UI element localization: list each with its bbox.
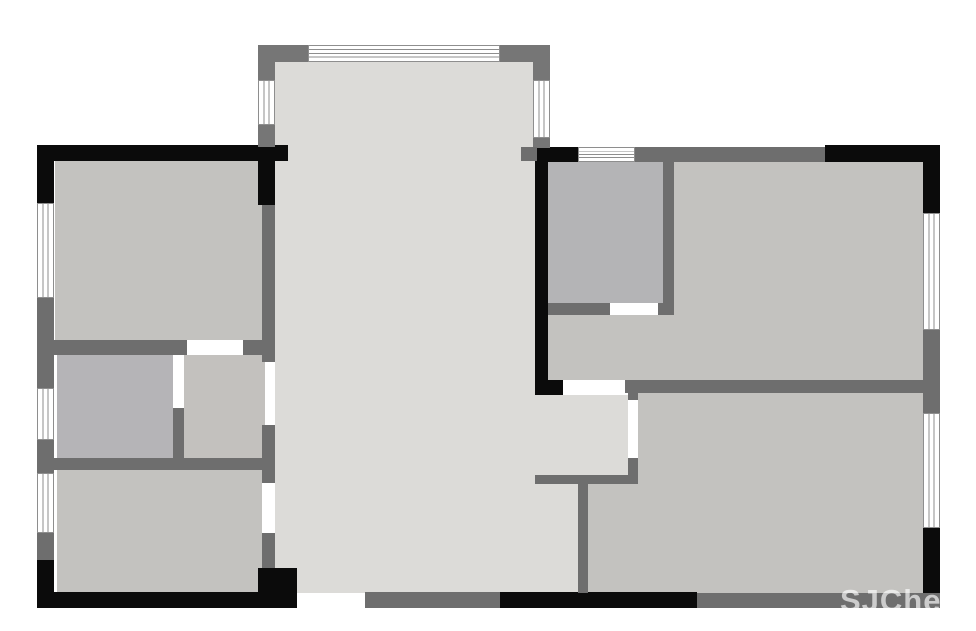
bedroom-bottom-right-upper (638, 393, 923, 475)
window-bay-left (258, 80, 275, 125)
bathroom-left (57, 355, 173, 458)
living-area-strip (535, 484, 578, 593)
hallway-nook (535, 395, 628, 475)
wall-bedroom2-doorpost-top (628, 393, 638, 400)
wall-leftwing-right-a (262, 205, 275, 362)
wall-living-bedroom2-vertical (578, 484, 588, 593)
door-closet (610, 303, 658, 315)
living-area-bay (275, 62, 533, 147)
wall-right-pier-mid (923, 330, 940, 413)
bedroom-bottom-left (57, 470, 262, 593)
wall-below-bedroom-tl-left (37, 340, 187, 355)
living-area-main (275, 147, 535, 593)
wall-bottom-center-black (500, 592, 697, 608)
door-master (563, 380, 625, 395)
wall-below-small-rooms (37, 458, 275, 470)
window-left-bottom (37, 473, 54, 533)
wall-bay-topright-v (533, 45, 550, 80)
wall-master-bottom (625, 380, 923, 393)
wall-rightwing-top-gray (635, 147, 825, 162)
wall-left-upper-corner (37, 145, 54, 205)
wall-bay-right-junction (521, 147, 537, 161)
wall-bay-topleft-v (258, 45, 275, 80)
closet-room (548, 161, 663, 303)
wall-bottom-gray-left (365, 592, 500, 608)
wall-closet-bottom-corner (658, 303, 674, 315)
wall-hallway-bottom (535, 475, 638, 484)
wall-bedroom2-left-lower (628, 458, 638, 475)
wall-master-doorpost (535, 380, 563, 395)
window-bay-top (308, 45, 500, 62)
wall-leftwing-right-b (262, 425, 275, 483)
window-right-lower (923, 413, 940, 528)
wall-top-left-exterior (37, 145, 288, 161)
wall-bath-divider (173, 408, 184, 458)
bedroom-bottom-right-lower (588, 475, 923, 593)
wall-rightwing-top-black-left (535, 147, 578, 162)
wall-bay-left-lower (258, 125, 275, 147)
wall-left-pier-3 (37, 533, 54, 560)
wall-center-right-vertical (535, 148, 548, 395)
wall-bottom-left-block (258, 568, 297, 608)
window-bay-right (533, 80, 550, 138)
window-left-middle (37, 388, 54, 440)
window-left-top (37, 203, 54, 298)
wall-closet-bottom-left (548, 303, 610, 315)
window-rightwing-top (578, 147, 635, 162)
wall-closet-right (663, 161, 674, 315)
watermark: SJChees (840, 583, 976, 619)
window-right-upper (923, 213, 940, 330)
wall-leftwing-right-c (262, 533, 275, 568)
wall-leftwing-right-upper (258, 145, 275, 205)
bedroom-top-left (55, 161, 262, 340)
wall-right-upper-corner (923, 145, 940, 213)
small-room-center (184, 355, 265, 458)
floor-plan: SJChees (0, 0, 976, 631)
